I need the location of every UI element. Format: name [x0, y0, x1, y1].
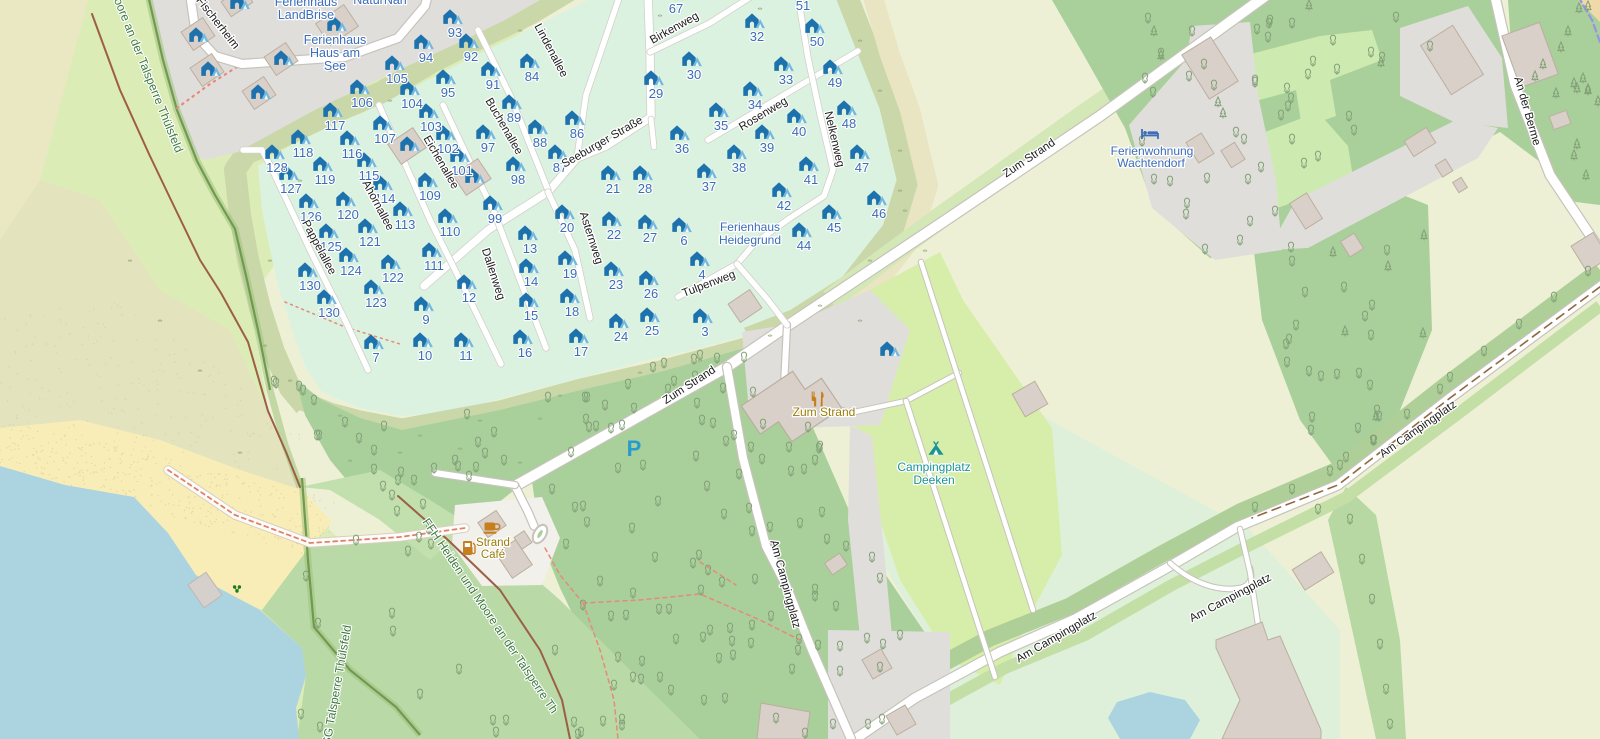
svg-text:111: 111 — [424, 258, 444, 273]
svg-text:Wachtendorf: Wachtendorf — [1117, 156, 1185, 170]
svg-text:17: 17 — [574, 344, 588, 359]
svg-text:18: 18 — [565, 304, 579, 319]
svg-text:13: 13 — [523, 241, 537, 256]
svg-text:91: 91 — [486, 77, 500, 92]
svg-text:94: 94 — [419, 50, 433, 65]
svg-text:41: 41 — [804, 172, 818, 187]
svg-text:118: 118 — [293, 145, 314, 160]
svg-text:121: 121 — [359, 234, 381, 249]
svg-text:104: 104 — [401, 96, 423, 111]
svg-text:42: 42 — [777, 198, 791, 213]
svg-text:45: 45 — [827, 220, 841, 235]
svg-text:20: 20 — [560, 220, 574, 235]
svg-text:39: 39 — [760, 140, 774, 155]
svg-text:98: 98 — [511, 172, 525, 187]
svg-text:93: 93 — [448, 25, 462, 40]
svg-text:35: 35 — [714, 118, 728, 133]
svg-text:21: 21 — [606, 181, 620, 196]
svg-text:47: 47 — [855, 160, 869, 175]
svg-text:44: 44 — [797, 238, 811, 253]
svg-text:37: 37 — [702, 179, 716, 194]
svg-text:92: 92 — [464, 49, 478, 64]
svg-text:123: 123 — [365, 295, 387, 310]
svg-text:48: 48 — [842, 116, 856, 131]
svg-text:119: 119 — [315, 172, 336, 187]
svg-text:40: 40 — [792, 124, 806, 139]
svg-text:11: 11 — [459, 348, 473, 363]
svg-text:7: 7 — [372, 350, 379, 365]
svg-text:36: 36 — [675, 141, 689, 156]
svg-text:117: 117 — [325, 118, 346, 133]
svg-text:Zum Strand: Zum Strand — [793, 405, 856, 419]
svg-text:49: 49 — [828, 75, 842, 90]
svg-text:46: 46 — [872, 206, 886, 221]
svg-text:130: 130 — [318, 305, 340, 320]
svg-text:29: 29 — [649, 86, 663, 101]
svg-text:30: 30 — [687, 67, 701, 82]
svg-text:Café: Café — [481, 549, 505, 561]
svg-text:Campingplatz: Campingplatz — [897, 460, 970, 474]
svg-text:124: 124 — [340, 263, 362, 278]
svg-text:51: 51 — [796, 0, 810, 13]
svg-text:23: 23 — [609, 277, 623, 292]
svg-text:NaturNah: NaturNah — [353, 0, 407, 7]
svg-text:84: 84 — [525, 69, 539, 84]
svg-text:12: 12 — [462, 290, 476, 305]
svg-text:130: 130 — [299, 278, 321, 293]
svg-text:116: 116 — [342, 146, 363, 161]
svg-text:97: 97 — [481, 140, 495, 155]
svg-text:26: 26 — [644, 286, 658, 301]
svg-text:14: 14 — [524, 274, 538, 289]
svg-text:Haus am: Haus am — [310, 46, 360, 60]
svg-text:LandBrise: LandBrise — [278, 8, 334, 22]
svg-text:25: 25 — [645, 323, 659, 338]
svg-text:9: 9 — [422, 312, 429, 327]
svg-text:105: 105 — [386, 71, 408, 86]
svg-text:122: 122 — [382, 270, 404, 285]
svg-text:27: 27 — [643, 230, 657, 245]
svg-text:38: 38 — [732, 160, 746, 175]
svg-text:Ferienhaus: Ferienhaus — [304, 33, 367, 47]
svg-text:109: 109 — [419, 188, 441, 203]
svg-text:24: 24 — [614, 329, 628, 344]
svg-text:107: 107 — [374, 131, 396, 146]
svg-text:28: 28 — [638, 181, 652, 196]
svg-text:103: 103 — [420, 119, 442, 134]
svg-text:120: 120 — [337, 207, 359, 222]
svg-text:3: 3 — [701, 324, 708, 339]
svg-text:86: 86 — [570, 126, 584, 141]
svg-text:113: 113 — [395, 217, 416, 232]
svg-text:95: 95 — [441, 85, 455, 100]
svg-text:15: 15 — [524, 308, 538, 323]
svg-text:P: P — [627, 436, 642, 461]
svg-text:128: 128 — [266, 160, 288, 175]
svg-text:22: 22 — [607, 227, 621, 242]
svg-text:33: 33 — [779, 72, 793, 87]
svg-text:Deeken: Deeken — [913, 473, 954, 487]
svg-text:110: 110 — [440, 224, 461, 239]
svg-text:10: 10 — [418, 348, 432, 363]
svg-text:19: 19 — [563, 266, 577, 281]
svg-text:6: 6 — [680, 233, 687, 248]
svg-text:88: 88 — [533, 135, 547, 150]
svg-text:106: 106 — [351, 95, 373, 110]
svg-text:67: 67 — [669, 1, 683, 16]
svg-text:Strand: Strand — [476, 537, 510, 549]
svg-text:16: 16 — [518, 345, 532, 360]
svg-text:32: 32 — [750, 29, 764, 44]
svg-text:99: 99 — [488, 211, 502, 226]
svg-text:50: 50 — [810, 34, 824, 49]
svg-text:See: See — [324, 59, 346, 73]
svg-text:Heidegrund: Heidegrund — [719, 233, 781, 247]
svg-text:Ferienhaus: Ferienhaus — [720, 220, 780, 234]
svg-text:127: 127 — [280, 181, 302, 196]
